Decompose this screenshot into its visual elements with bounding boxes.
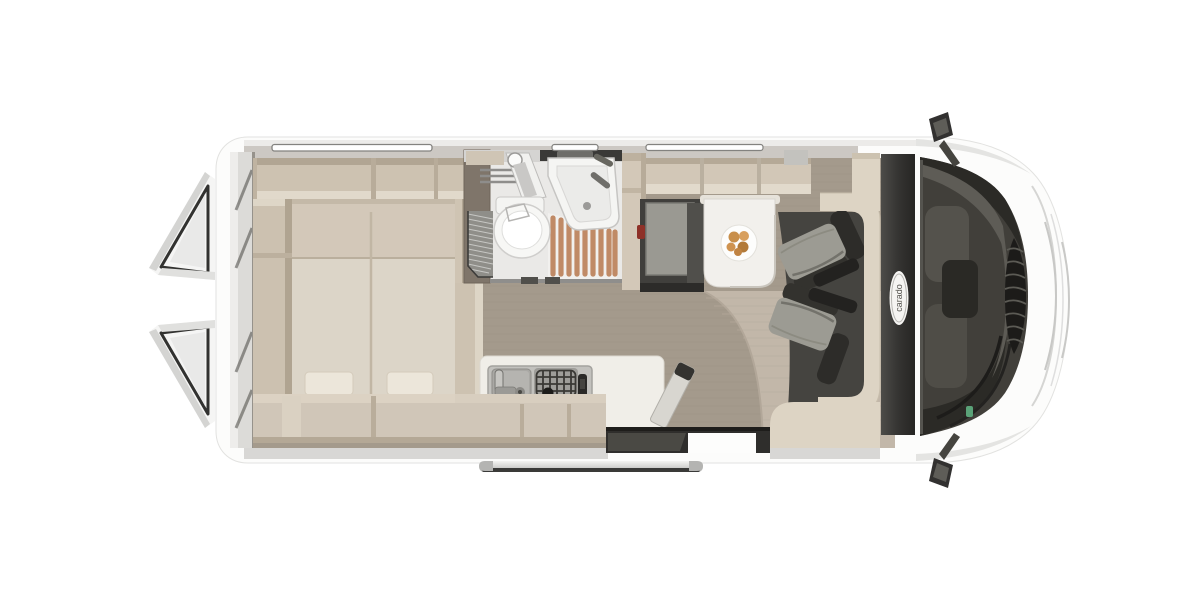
- svg-text:carado: carado: [894, 284, 904, 312]
